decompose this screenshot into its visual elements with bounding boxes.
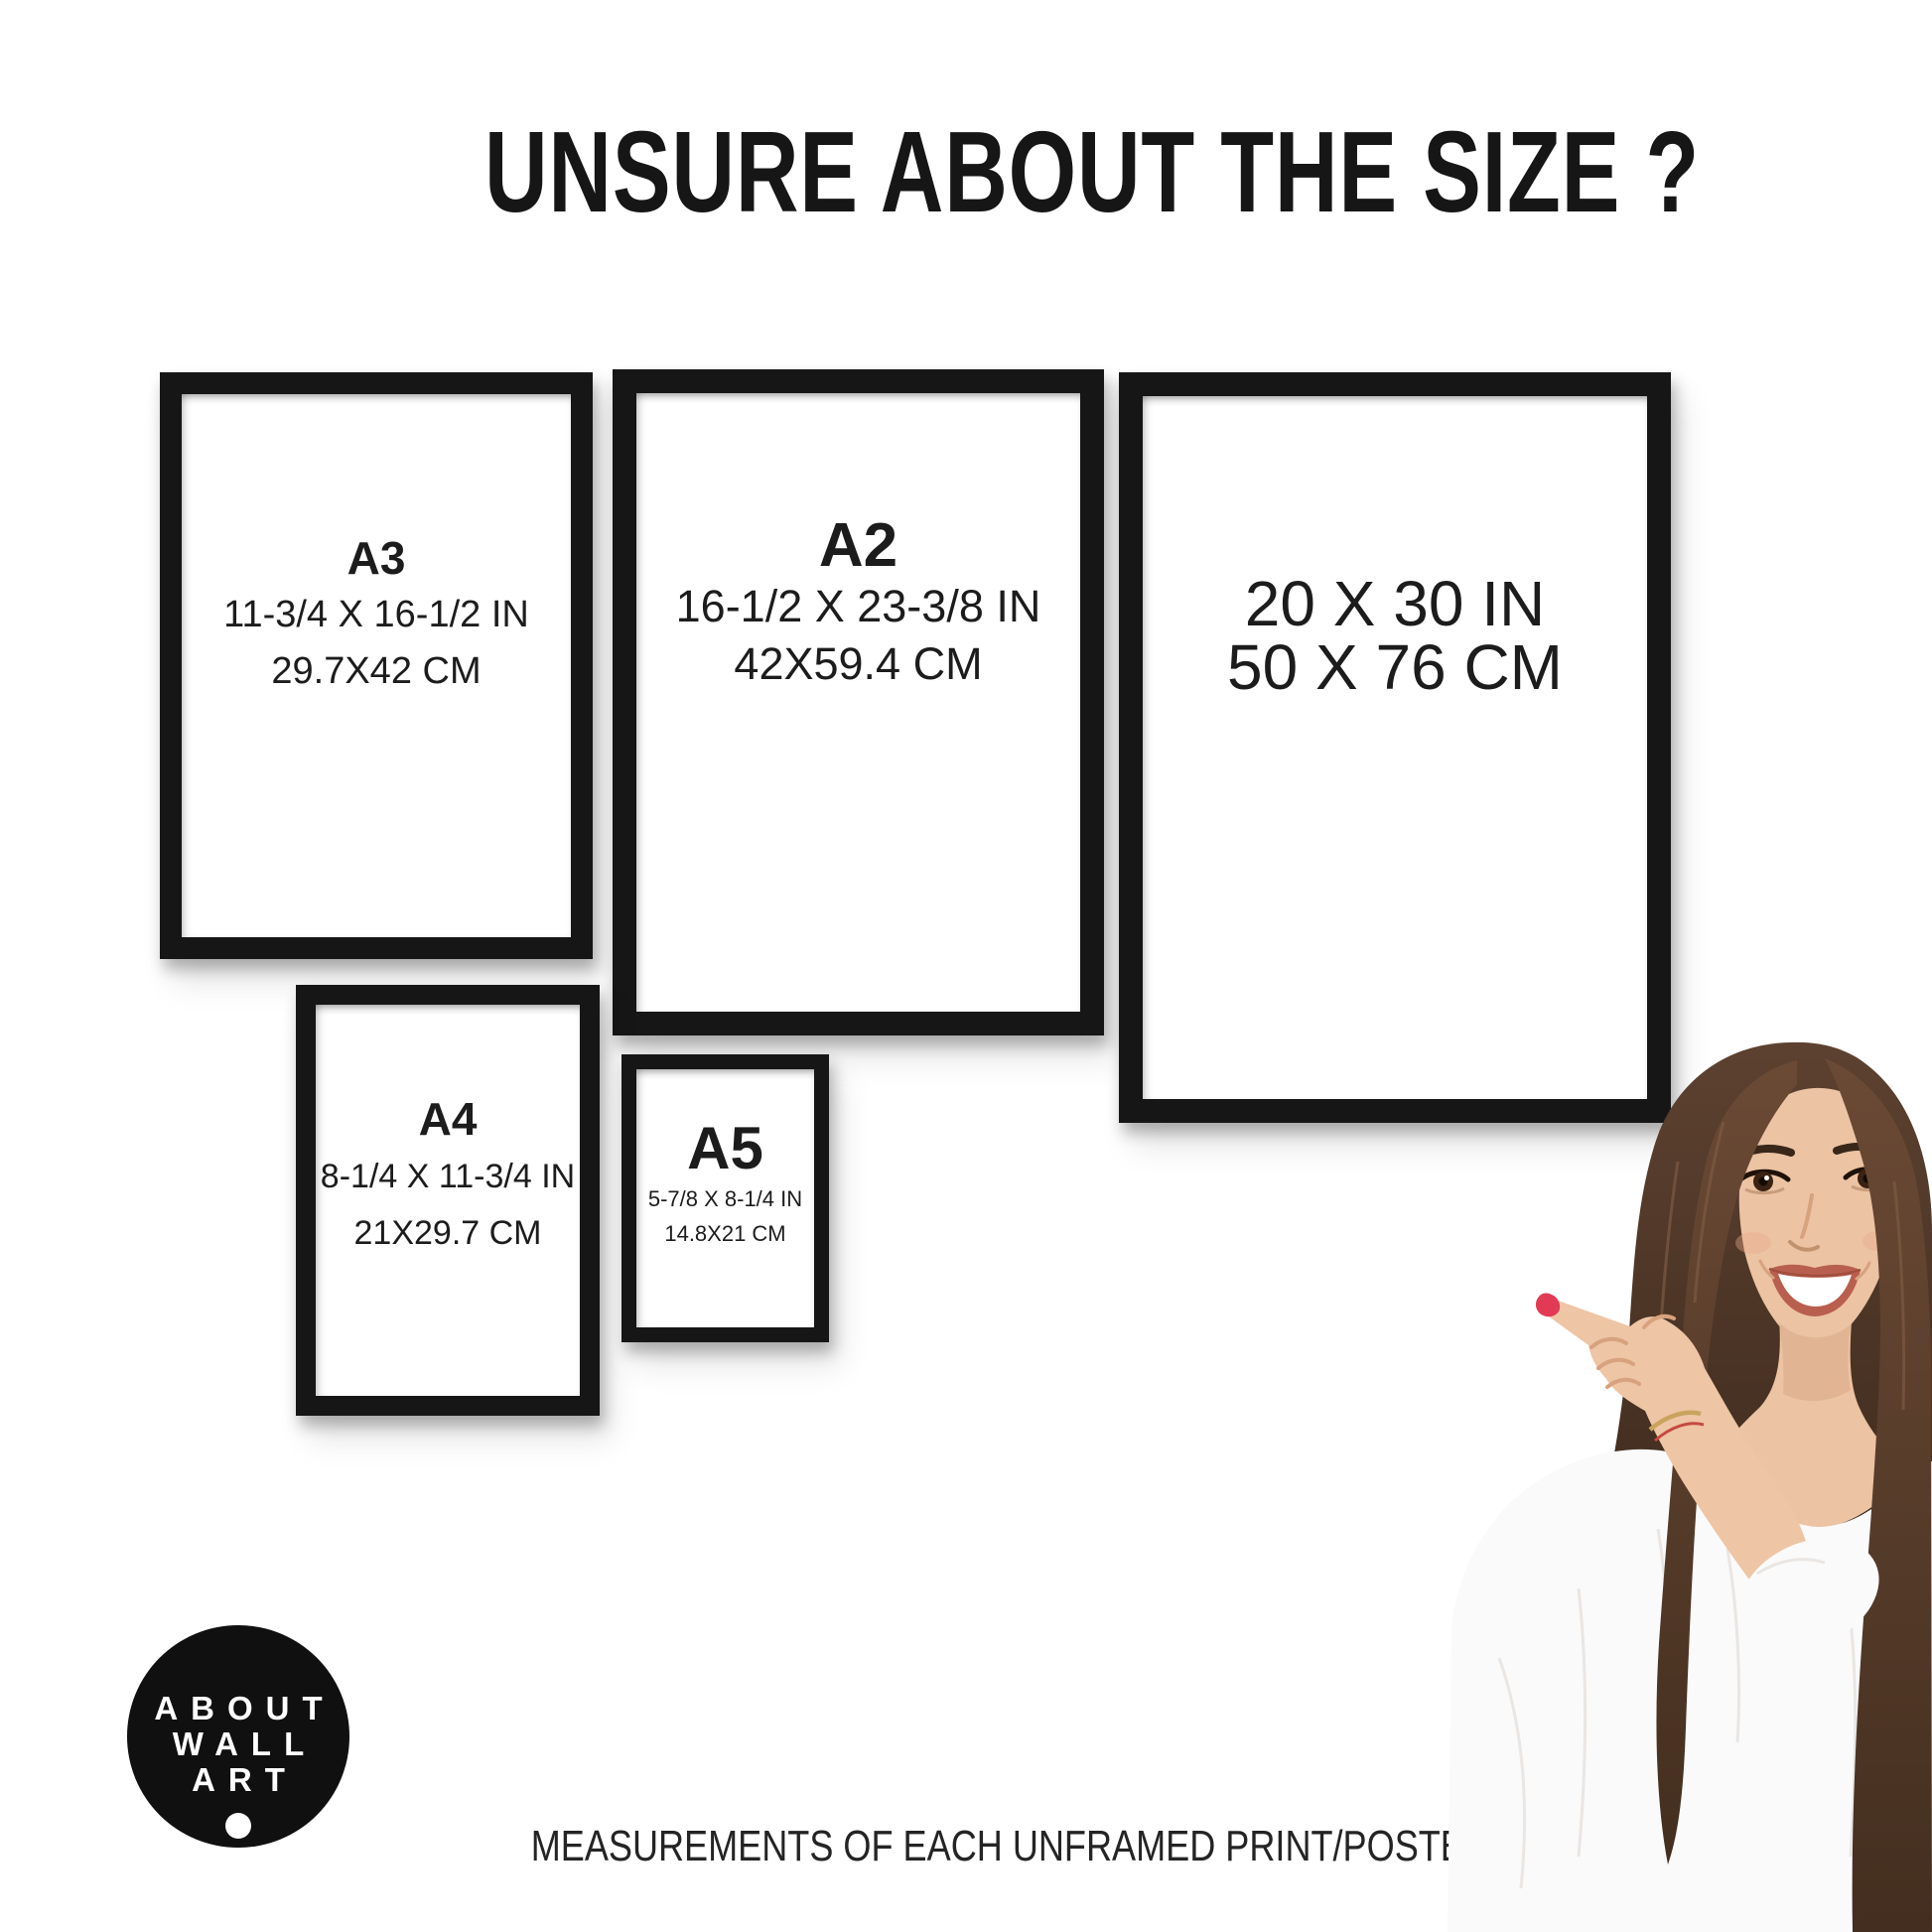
size-frame-a2-text: A2 16-1/2 X 23-3/8 IN 42X59.4 CM (636, 514, 1080, 693)
size-inches: 5-7/8 X 8-1/4 IN (636, 1179, 814, 1219)
size-label: A2 (636, 514, 1080, 578)
size-label: A3 (182, 529, 571, 587)
size-frame-a5-text: A5 5-7/8 X 8-1/4 IN 14.8X21 CM (636, 1118, 814, 1249)
model-photo (1430, 1033, 1932, 1932)
size-cm: 50 X 76 CM (1143, 635, 1647, 699)
size-frame-20x30: 20 X 30 IN 50 X 76 CM (1119, 372, 1671, 1123)
size-inches: 16-1/2 X 23-3/8 IN (636, 578, 1080, 635)
size-label: A5 (636, 1118, 814, 1179)
size-frame-a3-text: A3 11-3/4 X 16-1/2 IN 29.7X42 CM (182, 529, 571, 700)
brand-logo-line: ABOUT (127, 1691, 349, 1726)
size-frame-a3: A3 11-3/4 X 16-1/2 IN 29.7X42 CM (160, 372, 593, 959)
size-cm: 42X59.4 CM (636, 635, 1080, 693)
brand-logo-line: ART (127, 1762, 349, 1798)
nail-polish (1536, 1294, 1560, 1317)
size-inches: 11-3/4 X 16-1/2 IN (182, 587, 571, 643)
size-cm: 29.7X42 CM (182, 643, 571, 700)
brand-logo-line: WALL (127, 1726, 349, 1762)
size-cm: 14.8X21 CM (636, 1219, 814, 1249)
size-frame-20x30-text: 20 X 30 IN 50 X 76 CM (1143, 572, 1647, 699)
size-frame-a2: A2 16-1/2 X 23-3/8 IN 42X59.4 CM (613, 369, 1104, 1035)
brand-logo: ABOUT WALL ART (127, 1625, 349, 1848)
size-label: A4 (316, 1091, 580, 1147)
size-frame-a5: A5 5-7/8 X 8-1/4 IN 14.8X21 CM (621, 1054, 829, 1342)
size-frame-a4-text: A4 8-1/4 X 11-3/4 IN 21X29.7 CM (316, 1091, 580, 1261)
size-cm: 21X29.7 CM (316, 1206, 580, 1261)
footer-note: MEASUREMENTS OF EACH UNFRAMED PRINT/POST… (531, 1823, 1289, 1870)
size-frame-a4: A4 8-1/4 X 11-3/4 IN 21X29.7 CM (296, 985, 600, 1416)
size-inches: 20 X 30 IN (1143, 572, 1647, 635)
brand-logo-dot (225, 1813, 251, 1839)
size-inches: 8-1/4 X 11-3/4 IN (316, 1147, 580, 1206)
brand-logo-text: ABOUT WALL ART (127, 1691, 349, 1798)
page-title: UNSURE ABOUT THE SIZE ? (484, 113, 1541, 230)
